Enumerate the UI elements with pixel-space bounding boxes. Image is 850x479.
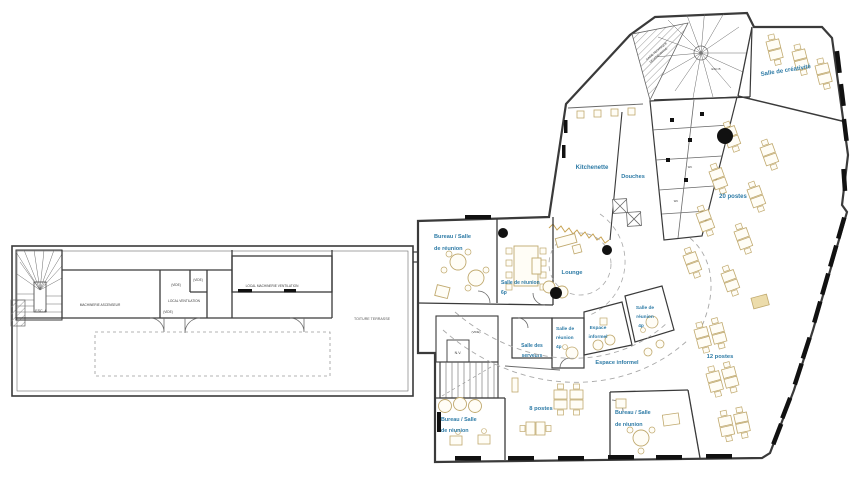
label-vide-shaft: (VIDE): [472, 330, 481, 334]
label-reunion4a-l1: Salle de: [556, 326, 574, 332]
label-vide-2: (VIDE): [193, 278, 203, 282]
label-bureau-bl-l1: Bureau / Salle: [441, 417, 477, 423]
label-reunion6-l2: 6p: [501, 290, 507, 296]
label-wc-1: WC: [688, 165, 693, 169]
salle-creativite-room: Salle de créativité: [738, 27, 846, 122]
label-bureau-bl-l2: de réunion: [441, 428, 469, 434]
salle-serveurs-room: Salle des serveurs: [512, 318, 552, 359]
label-reunion4b-l2: réunion: [636, 314, 654, 320]
espace-informel-room: Espace informel: [584, 302, 632, 355]
label-toiture-terrasse: TOITURE TERRASSE: [354, 317, 391, 321]
label-8-postes: 8 postes: [529, 406, 553, 412]
label-lounge: Lounge: [562, 270, 584, 276]
label-20-postes: 20 postes: [719, 194, 747, 200]
column: [717, 128, 733, 144]
label-reunion4a-l3: 4p: [556, 344, 562, 350]
corridor: Espace informel: [443, 238, 711, 382]
label-bureau-br-l1: Bureau / Salle: [615, 410, 651, 416]
label-espace1-l2: informel: [589, 334, 608, 340]
right-building: GAINE TECHNIQUE DESENFUMAGE ESC B WC WC: [413, 7, 849, 462]
label-bureau-top-l2: de réunion: [434, 246, 463, 252]
label-nv: N.V.: [455, 351, 462, 355]
vent-grille: [284, 289, 296, 293]
label-local-ventilation: LOCAL VENTILATION: [168, 299, 201, 303]
label-douches: Douches: [621, 174, 645, 180]
label-salle-creativite: Salle de créativité: [760, 64, 812, 78]
column: [550, 287, 562, 299]
roof-dashed-outline: [95, 332, 330, 376]
label-serveurs-l2: serveurs: [522, 353, 543, 359]
label-reunion6-l1: Salle de réunion: [501, 280, 540, 286]
label-serveurs-l1: Salle des: [521, 343, 543, 349]
salle-reunion-4p-left-room: Salle de réunion 4p: [552, 318, 584, 368]
salle-reunion-4p-right-room: Salle de réunion 4p: [625, 286, 674, 342]
label-machinerie-ascenseur: MACHINERIE ASCENSEUR: [80, 303, 121, 307]
bureau-reunion-bottom-right-room: Bureau / Salle de réunion: [610, 390, 700, 460]
building-outline: [418, 13, 848, 462]
sanitary-core: WC WC: [650, 97, 737, 240]
left-building: ESC. A MACHINERIE ASCENSEUR (VIDE) (VIDE…: [11, 246, 413, 396]
label-vide-1: (VIDE): [171, 283, 181, 287]
service-shaft-block: N.V. (VIDE): [436, 316, 498, 398]
label-espace1-l1: Espace: [590, 325, 607, 331]
hatched-shaft: [11, 300, 25, 326]
label-12-postes: 12 postes: [707, 354, 734, 360]
label-wc-2: WC: [674, 199, 679, 203]
label-esc-a: ESC. A: [35, 309, 47, 313]
open-space-8-postes: 8 postes: [505, 366, 583, 435]
floor-plan-svg: ESC. A MACHINERIE ASCENSEUR (VIDE) (VIDE…: [0, 0, 850, 479]
label-bureau-top-l1: Bureau / Salle: [434, 234, 471, 240]
label-reunion4a-l2: réunion: [556, 335, 574, 341]
douches-room: Douches: [610, 112, 645, 240]
vent-grille: [238, 289, 252, 293]
label-esc-b: ESC B: [711, 67, 720, 71]
bureau-reunion-bottom-left-room: Bureau / Salle de réunion: [436, 398, 505, 461]
label-local-machinerie-ventilation: LOCAL MACHINERIE VENTILATION: [246, 284, 299, 288]
open-space-20-postes: 20 postes: [681, 120, 781, 298]
label-espace-informel-corridor: Espace informel: [595, 360, 639, 366]
floor-plan-page: ESC. A MACHINERIE ASCENSEUR (VIDE) (VIDE…: [0, 0, 850, 479]
label-kitchenette: Kitchenette: [576, 165, 609, 171]
column: [498, 228, 508, 238]
label-vide-3: (VIDE): [163, 310, 173, 314]
gaine-technique-shaft: [632, 23, 688, 100]
label-reunion4b-l3: 4p: [638, 323, 644, 329]
column: [602, 245, 612, 255]
label-bureau-br-l2: de réunion: [615, 422, 643, 428]
open-space-12-postes: 12 postes: [692, 294, 769, 442]
label-reunion4b-l1: Salle de: [636, 305, 654, 311]
